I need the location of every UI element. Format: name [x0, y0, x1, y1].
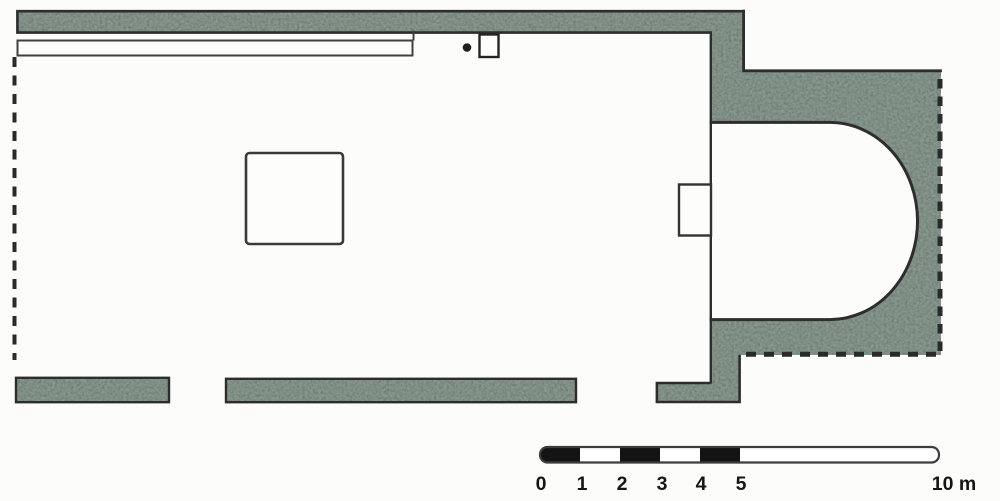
scale-tick-2: 2	[617, 473, 628, 495]
apse-opening-outline	[711, 122, 918, 319]
scale-tick-0: 0	[536, 473, 547, 495]
scale-end-label: 10 m	[932, 473, 976, 495]
masonry-group	[15, 10, 941, 403]
small-square-feature	[480, 35, 499, 58]
post-dot	[463, 43, 472, 52]
north-wall	[17, 10, 744, 33]
north-bench	[18, 41, 413, 56]
south-wall-middle	[225, 378, 577, 403]
south-wall-west	[15, 377, 170, 403]
scale-tick-1: 1	[577, 473, 588, 495]
church-floor-plan: 0 1 2 3 4 5 10 m	[0, 0, 1000, 501]
apse-block-top-outline	[744, 11, 941, 71]
scale-segment-0-1	[540, 447, 580, 463]
scale-segment-2-3	[620, 447, 660, 463]
scale-bar: 0 1 2 3 4 5 10 m	[536, 447, 977, 495]
scale-tick-5: 5	[736, 473, 747, 495]
scale-tick-3: 3	[657, 473, 668, 495]
masonry-texture-group	[15, 10, 941, 403]
central-square-foundation	[246, 153, 343, 244]
interior-features	[18, 31, 712, 245]
scale-tick-4: 4	[696, 473, 707, 495]
scale-segment-4-5	[700, 447, 740, 463]
scale-bar-segments	[540, 447, 939, 463]
pilaster	[679, 185, 711, 236]
floor-plan-canvas: 0 1 2 3 4 5 10 m	[0, 0, 1000, 501]
